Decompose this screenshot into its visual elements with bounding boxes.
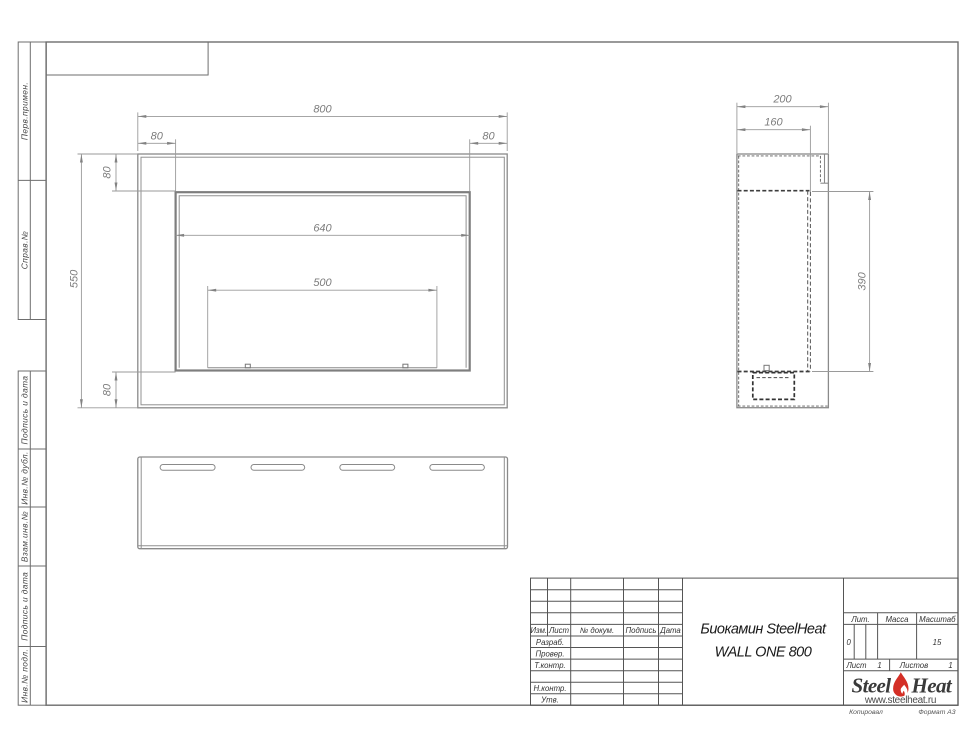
svg-text:№ докум.: № докум.	[580, 626, 614, 635]
svg-text:Биокамин SteelHeat: Биокамин SteelHeat	[700, 622, 827, 638]
svg-text:Лит.: Лит.	[850, 615, 869, 624]
svg-text:550: 550	[69, 269, 81, 288]
svg-text:Формат А3: Формат А3	[918, 709, 955, 716]
svg-text:500: 500	[313, 277, 332, 289]
svg-text:Подпись и дата: Подпись и дата	[19, 572, 29, 641]
svg-text:640: 640	[313, 222, 332, 234]
svg-text:160: 160	[764, 117, 783, 129]
svg-text:390: 390	[856, 271, 868, 290]
svg-text:Утв.: Утв.	[540, 696, 559, 705]
svg-text:Т.контр.: Т.контр.	[534, 661, 565, 670]
svg-text:15: 15	[933, 638, 942, 647]
svg-text:Подпись и дата: Подпись и дата	[19, 376, 29, 445]
svg-text:Н.контр.: Н.контр.	[533, 684, 566, 693]
svg-text:Heat: Heat	[911, 674, 953, 698]
svg-text:800: 800	[313, 104, 332, 116]
svg-text:Провер.: Провер.	[535, 649, 564, 658]
svg-text:Подпись: Подпись	[626, 626, 657, 635]
svg-text:Справ.№: Справ.№	[19, 231, 29, 270]
svg-text:www.steelheat.ru: www.steelheat.ru	[864, 695, 936, 706]
svg-text:200: 200	[772, 94, 792, 106]
svg-text:Масса: Масса	[885, 615, 909, 624]
svg-text:Взам.инв.№: Взам.инв.№	[19, 511, 29, 562]
svg-text:Масштаб: Масштаб	[919, 615, 956, 624]
svg-text:Копировал: Копировал	[849, 709, 883, 716]
svg-text:80: 80	[151, 130, 164, 142]
svg-text:0: 0	[847, 638, 852, 647]
svg-text:Перв.примен.: Перв.примен.	[19, 82, 29, 140]
svg-text:Дата: Дата	[659, 626, 681, 635]
svg-text:Steel: Steel	[852, 674, 892, 698]
svg-text:Изм.: Изм.	[530, 626, 547, 635]
svg-text:1: 1	[877, 661, 881, 670]
svg-text:Разраб.: Разраб.	[536, 638, 564, 647]
svg-text:Инв.№ подл.: Инв.№ подл.	[19, 649, 29, 703]
svg-text:Лист: Лист	[845, 661, 867, 670]
svg-text:WALL ONE 800: WALL ONE 800	[715, 645, 812, 661]
svg-text:Инв.№ дубл.: Инв.№ дубл.	[19, 451, 29, 505]
svg-text:80: 80	[482, 130, 495, 142]
svg-text:80: 80	[102, 166, 114, 179]
svg-text:Листов: Листов	[899, 661, 928, 670]
svg-text:1: 1	[948, 661, 952, 670]
svg-text:Лист: Лист	[548, 626, 570, 635]
svg-text:80: 80	[102, 383, 114, 396]
